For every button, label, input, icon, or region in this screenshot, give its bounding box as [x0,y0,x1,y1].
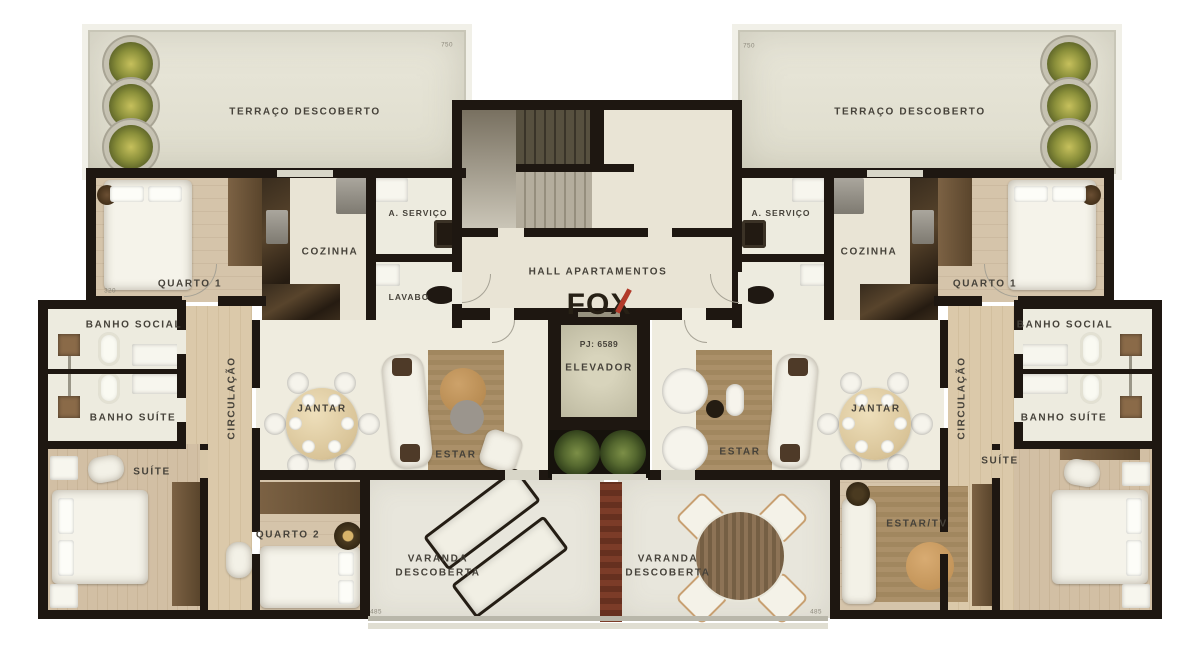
shower [58,334,80,356]
wall [516,164,634,172]
plate [302,440,315,453]
door-gap [277,170,333,177]
side-table [450,400,484,434]
varanda-divider [600,482,622,622]
label-terraco-left: TERRAÇO DESCOBERTO [229,107,380,118]
kitchen-sink [912,210,934,244]
chair [264,413,286,435]
door-gap [200,450,208,478]
label-suite-right: SUÍTE [981,456,1018,467]
toilet [744,286,774,304]
vanity [1020,344,1068,366]
palm-plant-icon [554,430,600,476]
plate [289,417,302,430]
kitchen-island [860,284,938,320]
plant-icon [1047,42,1091,86]
label-varanda-left-1: VARANDA [408,554,468,565]
planter-rim [552,474,646,480]
wall [824,174,834,320]
closet [228,176,262,266]
closet [938,176,972,266]
bathtub [1080,372,1102,404]
tv-panel [972,484,992,606]
sofa-cushion [400,444,420,462]
bathtub [98,332,120,366]
floor-plan-canvas: TERRAÇO DESCOBERTO TERRAÇO DESCOBERTO QU… [0,0,1200,662]
stair-landing [462,108,516,232]
pillow [148,186,182,202]
label-banho-suite-right: BANHO SUÍTE [1021,413,1108,424]
door-gap [1014,330,1023,354]
label-varanda-right-1: VARANDA [638,554,698,565]
label-lavabo-left: LAVABO [389,292,430,302]
wall [738,254,830,262]
stair-flight-lower [516,172,592,232]
bathtub [98,372,120,404]
wall [1152,300,1162,618]
sofa-cushion [788,358,808,376]
wall [252,428,260,532]
nightstand [50,584,78,608]
label-jantar-left: JANTAR [297,404,346,415]
door-gap [177,398,186,422]
stair-flight-upper [516,108,592,166]
nightstand [1122,584,1150,608]
plant-icon [1047,84,1091,128]
door-gap [177,330,186,354]
label-estar-right: ESTAR [719,447,760,458]
chair [817,413,839,435]
wall [940,320,948,388]
dim-varanda-right: 485 [810,609,822,615]
label-banho-social-right: BANHO SOCIAL [1017,320,1113,331]
wall [218,296,266,306]
fridge [832,178,864,214]
sofa [842,498,876,604]
label-quarto2: QUARTO 2 [256,530,320,541]
plate [341,417,354,430]
pillow [1126,498,1142,534]
plate [855,440,868,453]
chair [911,413,933,435]
wall [86,168,466,178]
wall [1014,300,1162,309]
wall [1022,369,1156,374]
laundry-tank [792,178,826,202]
wall [360,470,370,618]
label-hall: HALL APARTAMENTOS [529,267,668,278]
wall [934,296,982,306]
wall [38,300,48,618]
washer [742,220,766,248]
door-gap [661,470,695,480]
wall [252,320,260,388]
pillow [338,580,354,604]
palm-plant-icon [600,430,646,476]
round-chair [662,426,708,472]
wall [1104,168,1114,308]
armchair [226,542,252,578]
dim-terrace-left: 750 [441,42,453,48]
door-gap [648,228,672,237]
plant-icon [1047,125,1091,169]
label-quarto1-right: QUARTO 1 [953,279,1017,290]
label-pj: PJ: 6589 [580,339,619,349]
label-servico-left: A. SERVIÇO [389,208,448,218]
label-circulacao-right: CIRCULAÇÃO [957,356,968,439]
plate [881,440,894,453]
label-servico-right: A. SERVIÇO [752,208,811,218]
shower [1120,396,1142,418]
door-gap [505,470,539,480]
plant-icon [109,84,153,128]
dim-terrace-right: 750 [743,43,755,49]
wall [370,254,462,262]
vanity [132,374,180,394]
dim-quarto1-left: 320 [104,288,116,294]
label-banho-suite-left: BANHO SUÍTE [90,413,177,424]
label-elevador: ELEVADOR [565,363,633,374]
bathtub [1080,332,1102,366]
pillow [58,498,74,534]
plate [894,417,907,430]
kitchen-island [262,284,340,320]
label-jantar-right: JANTAR [851,404,900,415]
wall [940,554,948,614]
varanda-railing-shadow [368,623,828,629]
plate [842,417,855,430]
wardrobe [172,482,200,606]
pillow [1126,540,1142,576]
label-estar-tv: ESTAR/TV [886,519,948,530]
door-gap [682,308,706,320]
label-circulacao-left: CIRCULAÇÃO [227,356,238,439]
sofa-cushion [780,444,800,462]
wardrobe [258,482,362,514]
vanity [132,344,180,366]
wall [38,441,186,449]
door-gap [738,272,748,304]
plant-pot [334,522,362,550]
label-suite-left: SUÍTE [133,467,170,478]
plant-icon [109,125,153,169]
wall [38,300,186,309]
vanity [1020,374,1068,394]
wall [1014,441,1162,449]
label-banho-social-left: BANHO SOCIAL [86,320,182,331]
label-varanda-left-2: DESCOBERTA [395,568,480,579]
wall [940,428,948,532]
chair [358,413,380,435]
shower [1120,334,1142,356]
shower [58,396,80,418]
wall [830,470,840,618]
basin [374,264,400,286]
label-estar-left: ESTAR [435,450,476,461]
pillow [110,186,144,202]
glass-partition [1129,356,1132,398]
nightstand [50,456,78,480]
round-chair [662,368,708,414]
ottoman [726,384,744,416]
label-terraco-right: TERRAÇO DESCOBERTO [834,107,985,118]
pillow [1052,186,1086,202]
label-cozinha-left: COZINHA [302,247,359,258]
wall [366,174,376,320]
pillow [58,540,74,576]
wall [590,100,604,166]
varanda-railing [368,616,828,621]
plant-pot [846,482,870,506]
wall [462,228,640,237]
glass-partition [68,356,71,398]
wall [734,168,1114,178]
laundry-tank [374,178,408,202]
nightstand [1122,462,1150,486]
door-gap [867,170,923,177]
outdoor-table [696,512,784,600]
kitchen-sink [266,210,288,244]
wall [86,168,96,308]
wall [252,554,260,614]
label-quarto1-left: QUARTO 1 [158,279,222,290]
pillow [1014,186,1048,202]
plate [328,440,341,453]
wall [44,369,178,374]
sofa-cushion [392,358,412,376]
door-gap [490,308,514,320]
label-varanda-right-2: DESCOBERTA [625,568,710,579]
plant-icon [109,42,153,86]
dim-varanda-left: 485 [370,609,382,615]
side-table [706,400,724,418]
label-cozinha-right: COZINHA [841,247,898,258]
fridge [336,178,368,214]
door-gap [452,272,462,304]
pillow [338,552,354,576]
door-gap [498,228,524,237]
basin [800,264,826,286]
